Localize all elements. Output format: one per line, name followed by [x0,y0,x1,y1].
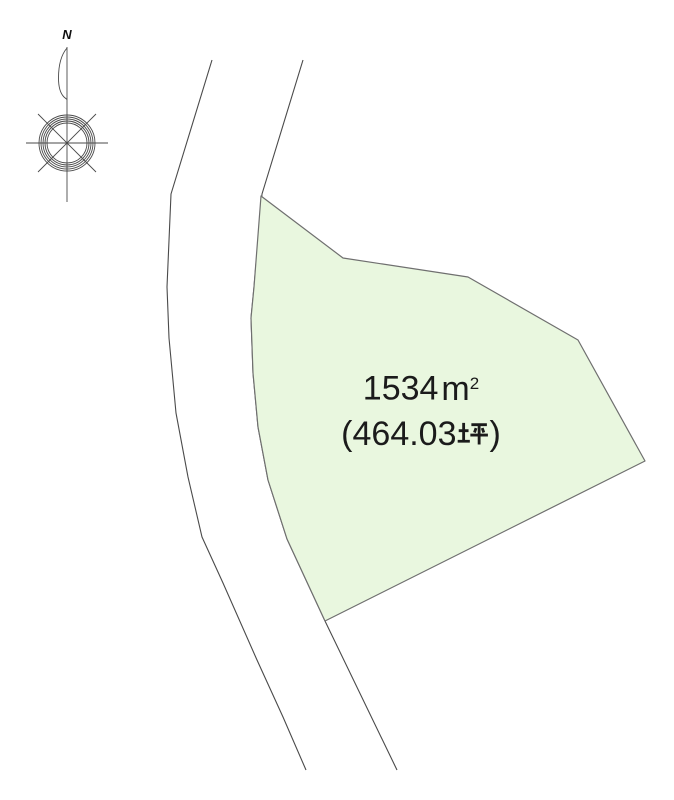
tsubo-kanji-glyph [458,418,489,449]
parcel-area-sqm-line: 1534m2 [341,361,501,412]
parcel-area-label: 1534m2 (464.03 ) [341,361,501,457]
north-label: N [62,27,72,42]
north-arrow-pennant [59,48,68,100]
compass-rose: N [26,27,108,202]
area-unit-m: m [441,370,469,408]
tsubo-prefix: (464.03 [341,415,456,453]
parcel-area-tsubo-line: (464.03 ) [341,412,501,457]
area-unit-exponent: 2 [470,374,479,393]
site-plan: N 1534m2 (464.03 [0,0,674,800]
area-value: 1534 [363,370,439,408]
site-plan-canvas: N [0,0,674,800]
tsubo-suffix: ) [490,415,501,453]
